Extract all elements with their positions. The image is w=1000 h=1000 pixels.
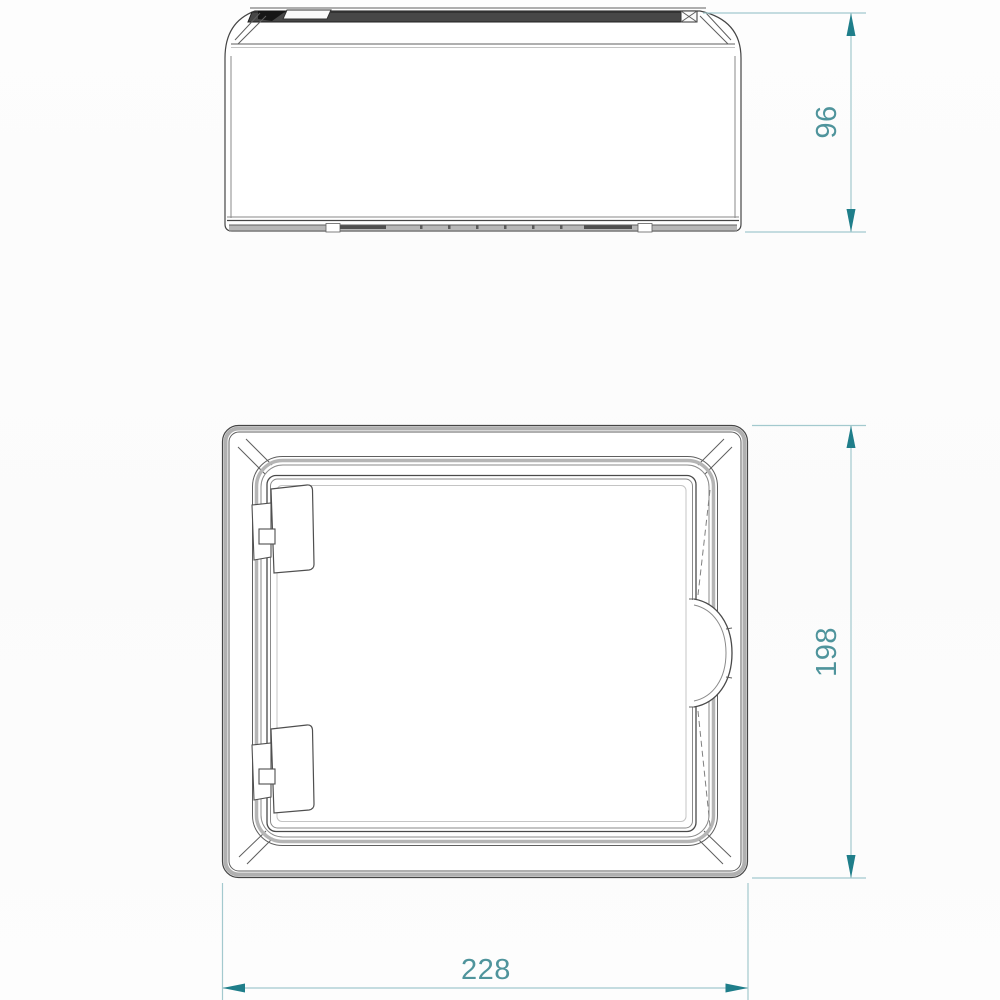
dimension-front-height: 198 (752, 426, 866, 879)
dimension-arrow-up (847, 426, 856, 449)
door (252, 476, 732, 832)
dimension-arrow-down (847, 855, 856, 878)
hinge-pivot (259, 529, 275, 544)
dimension-value-198: 198 (811, 627, 843, 677)
base-tick (560, 226, 563, 230)
base-notch (326, 224, 340, 233)
base-notch (638, 224, 652, 233)
dimension-value-96: 96 (811, 105, 843, 138)
side-elevation-view (225, 8, 741, 232)
base-tick (448, 226, 451, 230)
dimension-value-228: 228 (461, 954, 511, 986)
base-tick (476, 226, 479, 230)
hinge-flap (271, 725, 314, 813)
base-tick (504, 226, 507, 230)
dimension-arrow-up (847, 13, 856, 36)
door-outline (267, 476, 696, 832)
dimension-front-width: 228 (223, 883, 749, 1000)
dimension-arrow-down (847, 209, 856, 232)
hinge-flap (271, 485, 314, 573)
hinge-pivot (259, 769, 275, 784)
enclosure-drawing: 96 198 228 (0, 0, 1000, 1000)
technical-drawing-page: 96 198 228 (0, 0, 1000, 1000)
extension-line (752, 426, 866, 879)
latch-plate (283, 10, 331, 19)
base-slot (340, 226, 386, 230)
front-elevation-view (223, 426, 748, 878)
base-tick (532, 226, 535, 230)
base-band (229, 224, 737, 233)
dimension-arrow-left (223, 984, 246, 993)
base-tick (420, 226, 423, 230)
base-slot (584, 226, 632, 230)
dimension-arrow-right (726, 984, 749, 993)
